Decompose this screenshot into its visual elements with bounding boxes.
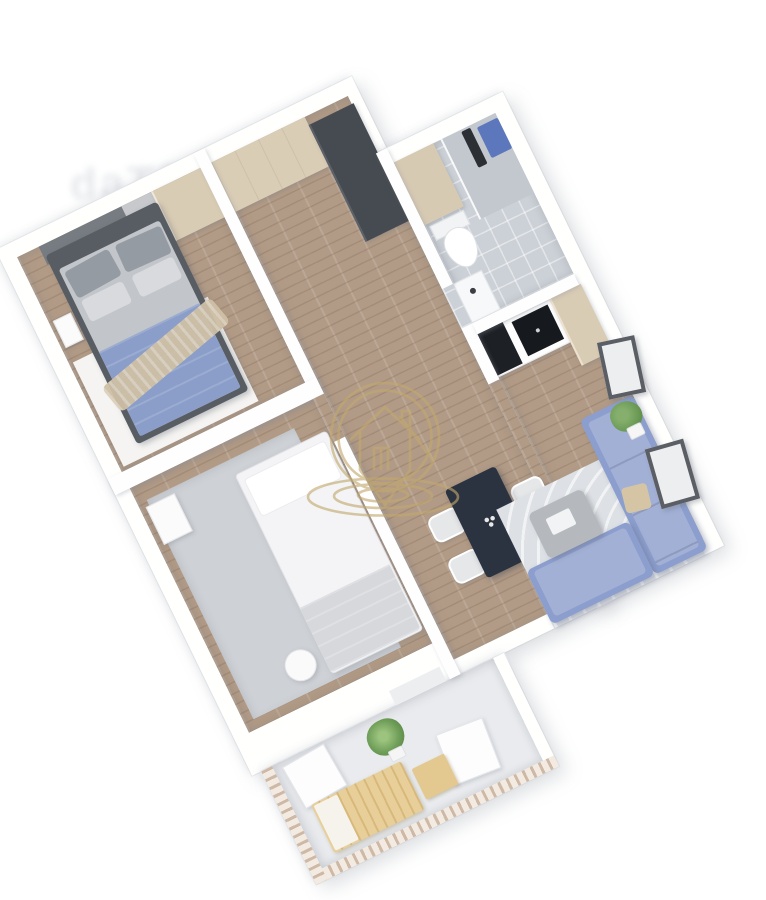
apartment-plan bbox=[0, 0, 766, 900]
floorplan-image: daTS bbox=[0, 0, 766, 900]
